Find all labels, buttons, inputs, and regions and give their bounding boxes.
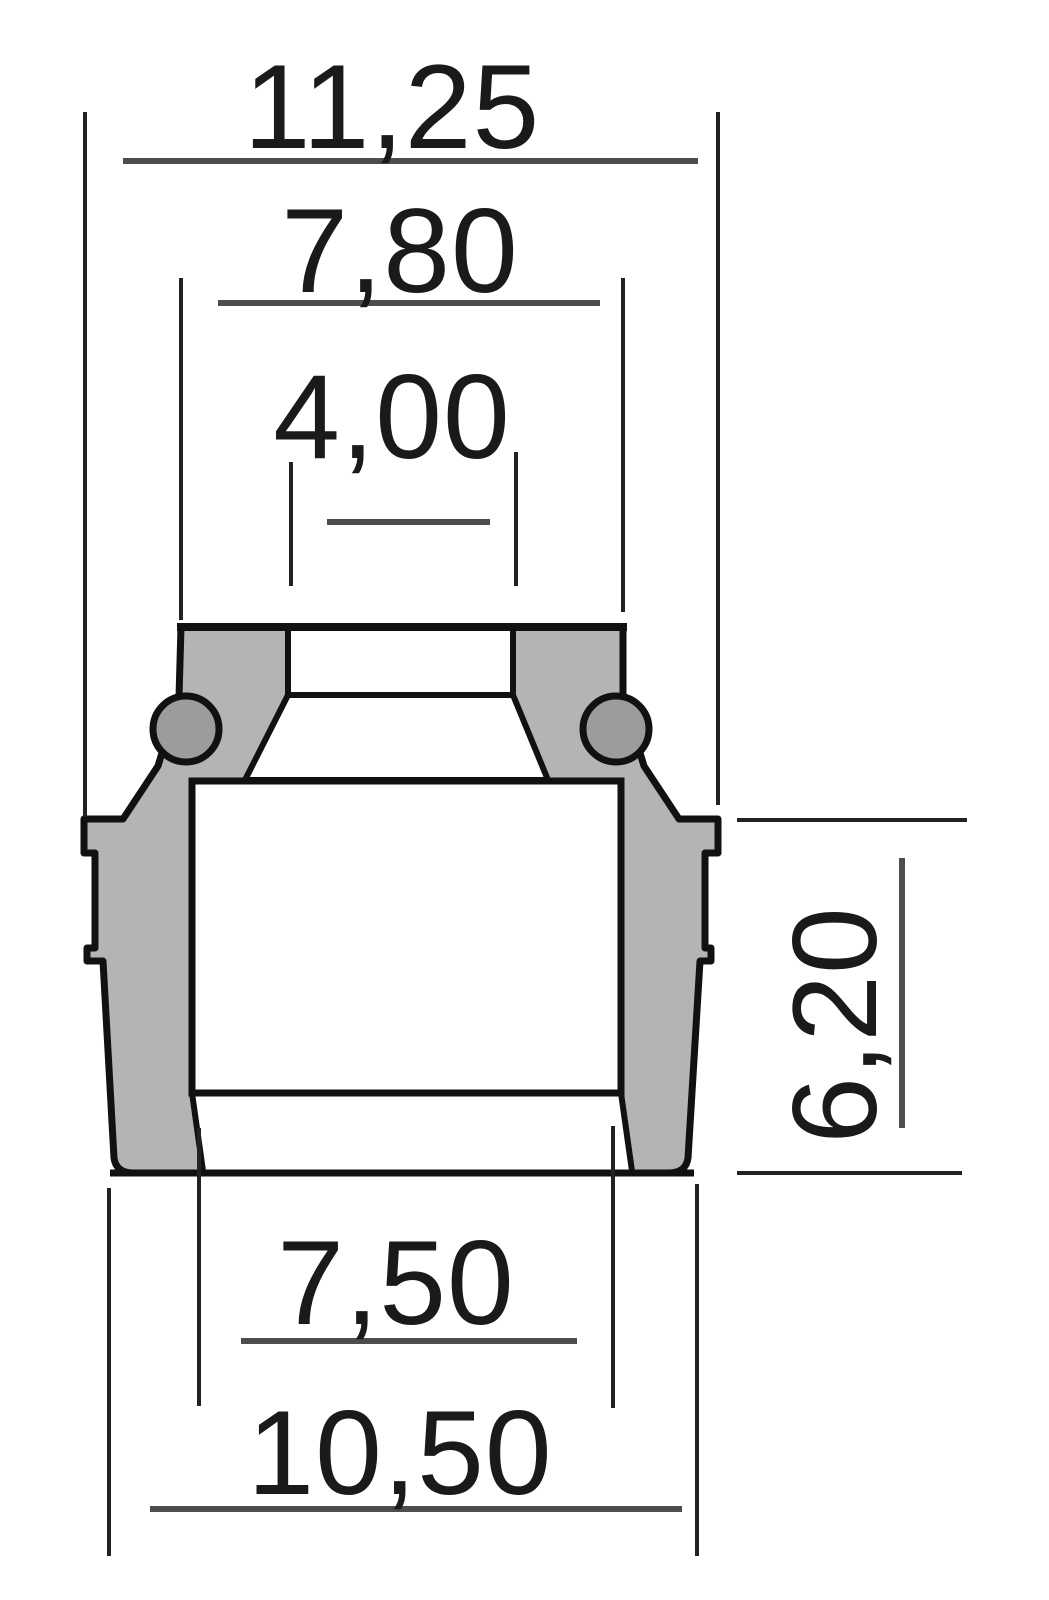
- bottom-lip-opening: [192, 1093, 632, 1170]
- dim-label-bottom-outer-diameter: 10,50: [247, 1386, 552, 1520]
- dim-label-lower-body-height: 6,20: [768, 906, 902, 1144]
- drawing-canvas: 11,25 7,80 4,00 6,20 7,50 10,50: [0, 0, 1049, 1600]
- seal-cross-section: [84, 627, 718, 1173]
- spring-circle-right: [583, 696, 649, 762]
- technical-drawing: 11,25 7,80 4,00 6,20 7,50 10,50: [0, 0, 1049, 1600]
- dim-label-upper-body-width: 7,80: [281, 184, 519, 318]
- spring-circle-left: [153, 696, 219, 762]
- bore-slot-and-taper: [245, 627, 548, 780]
- dim-label-top-outer-width: 11,25: [244, 40, 540, 174]
- dim-label-bottom-inner-diameter: 7,50: [277, 1216, 515, 1350]
- inner-cavity: [192, 781, 621, 1093]
- dim-label-bore-inner-diameter: 4,00: [273, 350, 511, 484]
